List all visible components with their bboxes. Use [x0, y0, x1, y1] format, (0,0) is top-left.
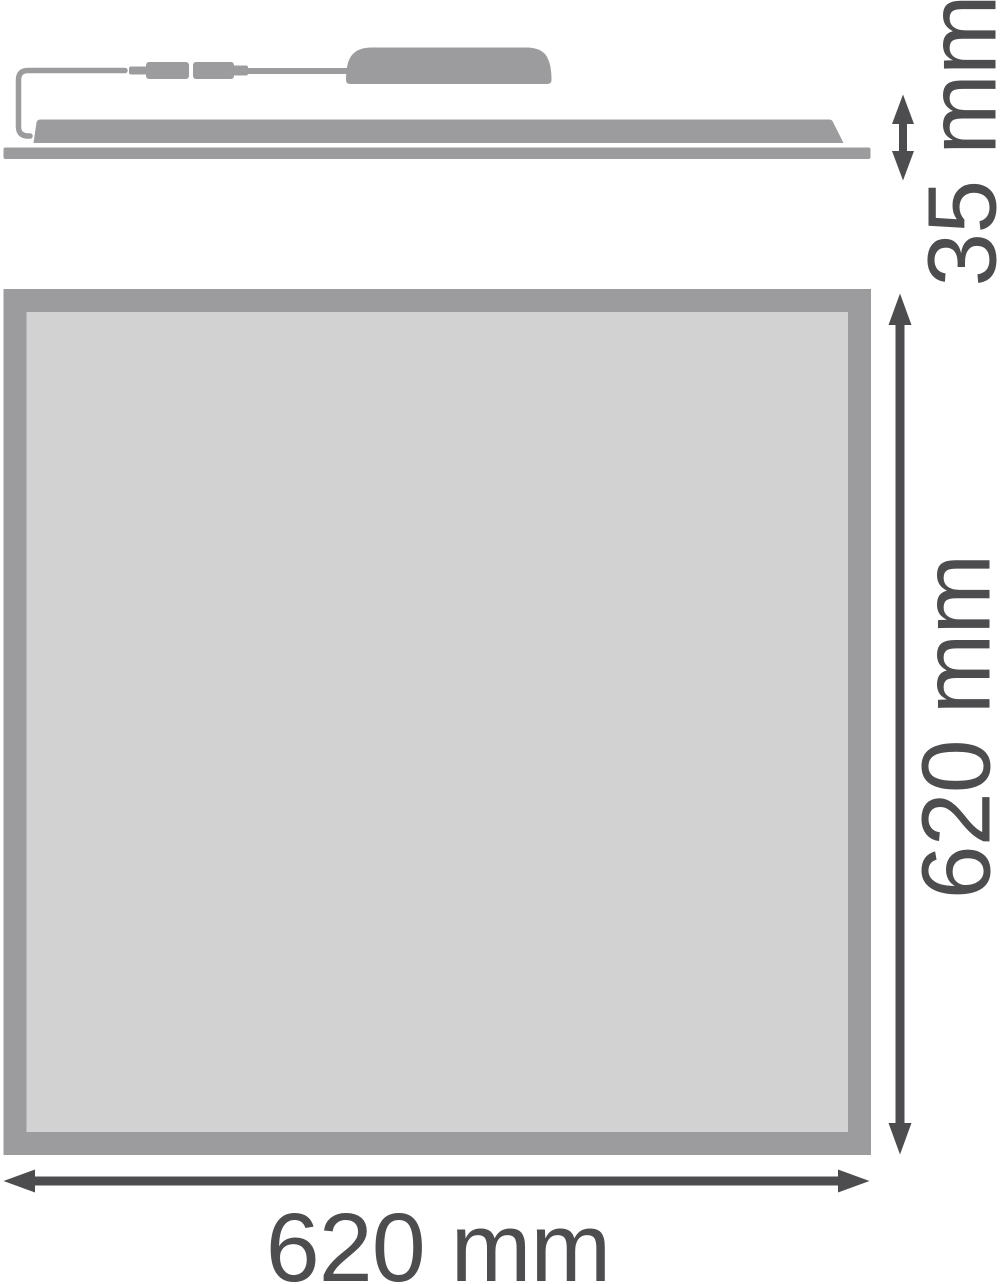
dimension-drawing: 35 mm 620 mm 620 mm	[0, 0, 1000, 1284]
front-view	[4, 289, 872, 1155]
driver-cable	[246, 68, 350, 74]
cable-connector	[129, 62, 248, 79]
driver-box	[346, 48, 552, 85]
connector-tail	[233, 66, 248, 76]
arrowhead-right-icon	[838, 1170, 870, 1193]
arrowhead-left-icon	[4, 1170, 36, 1193]
panel-faceplate-side	[4, 148, 871, 160]
depth-dimension-label: 35 mm	[914, 0, 1000, 287]
arrowhead-down-icon	[889, 1123, 912, 1155]
height-dimension-label: 620 mm	[908, 555, 1000, 899]
side-view	[4, 48, 871, 160]
panel-housing-side	[34, 120, 844, 144]
width-dimension-arrow	[4, 1170, 870, 1193]
drawing-artwork	[0, 0, 1000, 1284]
connector-plug-left	[146, 62, 189, 79]
connector-stub	[129, 67, 147, 75]
panel-diffuser	[27, 312, 849, 1132]
width-dimension-label: 620 mm	[266, 1199, 610, 1284]
connector-plug-right	[193, 62, 234, 79]
arrowhead-up-icon	[889, 294, 912, 326]
